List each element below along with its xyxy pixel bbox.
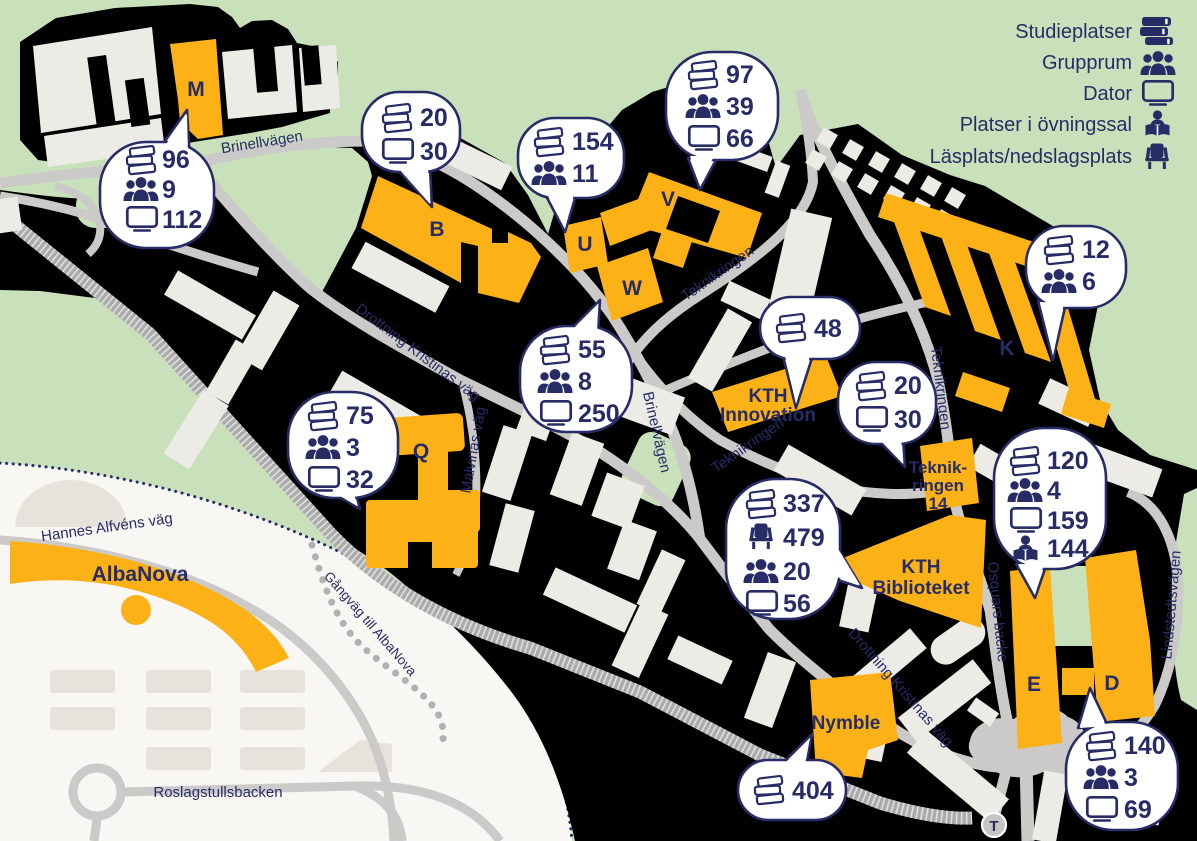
svg-text:112: 112 (162, 206, 202, 234)
svg-text:11: 11 (572, 160, 599, 188)
svg-text:97: 97 (726, 61, 754, 89)
svg-text:337: 337 (783, 490, 825, 518)
svg-text:Innovation: Innovation (720, 405, 816, 426)
svg-text:20: 20 (420, 104, 448, 132)
svg-text:ringen: ringen (912, 476, 964, 495)
svg-text:48: 48 (814, 315, 842, 343)
svg-text:E: E (1027, 673, 1041, 696)
svg-text:Q: Q (413, 440, 429, 463)
svg-text:250: 250 (578, 400, 620, 428)
svg-text:Nymble: Nymble (812, 713, 881, 734)
svg-text:404: 404 (792, 777, 834, 805)
svg-text:39: 39 (726, 93, 754, 121)
svg-text:20: 20 (783, 558, 811, 586)
svg-text:T: T (989, 818, 998, 835)
svg-text:U: U (577, 233, 592, 256)
svg-text:Grupprum: Grupprum (1042, 52, 1132, 74)
svg-text:75: 75 (346, 402, 374, 430)
svg-text:W: W (622, 277, 642, 300)
svg-text:159: 159 (1047, 507, 1089, 535)
svg-text:20: 20 (894, 372, 922, 400)
svg-text:66: 66 (726, 125, 754, 153)
svg-text:Dator: Dator (1083, 83, 1132, 105)
svg-text:140: 140 (1124, 732, 1166, 760)
svg-text:144: 144 (1047, 535, 1089, 563)
svg-text:Biblioteket: Biblioteket (872, 578, 970, 599)
svg-text:M: M (187, 78, 205, 101)
svg-text:55: 55 (578, 336, 606, 364)
svg-text:6: 6 (1082, 268, 1096, 296)
svg-text:V: V (661, 188, 675, 211)
svg-text:Studieplatser: Studieplatser (1015, 21, 1132, 43)
svg-text:12: 12 (1082, 236, 1110, 264)
svg-text:Teknik-: Teknik- (909, 458, 967, 477)
svg-text:K: K (999, 337, 1014, 360)
svg-text:Platser i övningssal: Platser i övningssal (960, 114, 1132, 136)
svg-text:Roslagstullsbacken: Roslagstullsbacken (153, 784, 282, 801)
svg-text:96: 96 (162, 146, 190, 174)
svg-text:120: 120 (1047, 447, 1089, 475)
svg-text:14: 14 (929, 494, 948, 513)
svg-text:9: 9 (162, 176, 176, 204)
svg-text:8: 8 (578, 368, 592, 396)
svg-text:B: B (429, 218, 444, 241)
svg-text:AlbaNova: AlbaNova (92, 563, 189, 586)
svg-text:479: 479 (783, 524, 825, 552)
svg-text:56: 56 (783, 590, 811, 618)
svg-text:3: 3 (1124, 764, 1138, 792)
svg-text:KTH: KTH (901, 557, 940, 578)
svg-text:69: 69 (1124, 796, 1152, 824)
svg-text:3: 3 (346, 434, 360, 462)
svg-text:154: 154 (572, 128, 614, 156)
svg-text:KTH: KTH (748, 386, 787, 407)
svg-text:30: 30 (420, 138, 448, 166)
svg-text:Läsplats/nedslagsplats: Läsplats/nedslagsplats (930, 146, 1132, 168)
svg-text:32: 32 (346, 466, 374, 494)
svg-text:30: 30 (894, 406, 922, 434)
svg-text:4: 4 (1047, 477, 1061, 505)
svg-text:D: D (1104, 672, 1119, 695)
